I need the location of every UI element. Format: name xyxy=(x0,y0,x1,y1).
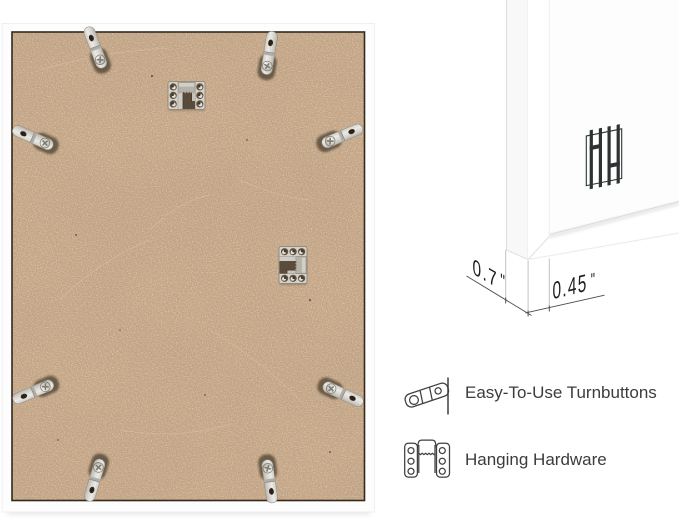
svg-text:0.45": 0.45" xyxy=(553,267,597,305)
svg-text:Easy-To-Use Turnbuttons: Easy-To-Use Turnbuttons xyxy=(465,383,657,402)
svg-text:Hanging Hardware: Hanging Hardware xyxy=(465,450,607,469)
svg-text:0.7": 0.7" xyxy=(473,252,507,298)
